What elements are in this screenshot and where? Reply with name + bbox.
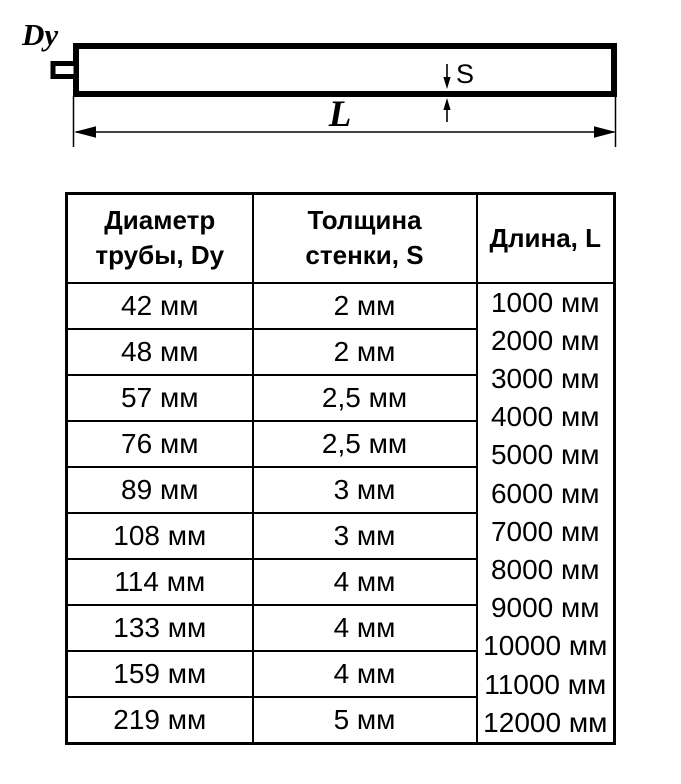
length-value: 8000 мм: [478, 551, 614, 589]
diameter-cell: 219 мм: [67, 697, 253, 743]
pipe-size-table: Диаметр трубы, Dy Толщина стенки, S Длин…: [65, 192, 616, 745]
length-value: 5000 мм: [478, 436, 614, 474]
thickness-cell: 2,5 мм: [253, 421, 477, 467]
length-value: 9000 мм: [478, 589, 614, 627]
thickness-cell: 3 мм: [253, 467, 477, 513]
length-value: 10000 мм: [478, 627, 614, 665]
header-line: трубы, Dy: [68, 238, 252, 273]
diameter-cell: 89 мм: [67, 467, 253, 513]
diameter-cell: 133 мм: [67, 605, 253, 651]
thickness-arrow-up: [443, 98, 450, 122]
length-value: 7000 мм: [478, 513, 614, 551]
diameter-cell: 76 мм: [67, 421, 253, 467]
length-value: 4000 мм: [478, 398, 614, 436]
length-value: 1000 мм: [478, 284, 614, 322]
thickness-cell: 2 мм: [253, 283, 477, 329]
thickness-cell: 3 мм: [253, 513, 477, 559]
length-value: 12000 мм: [478, 704, 614, 742]
thickness-cell: 4 мм: [253, 651, 477, 697]
diameter-cell: 42 мм: [67, 283, 253, 329]
pipe-dimension-diagram: Dy S L: [0, 0, 681, 190]
diameter-label: Dy: [21, 17, 58, 52]
length-list-cell: 1000 мм 2000 мм 3000 мм 4000 мм 5000 мм …: [477, 283, 615, 744]
column-header-length: Длина, L: [477, 194, 615, 283]
header-line: стенки, S: [254, 238, 476, 273]
pipe-end-notch: [53, 64, 76, 77]
pipe-spec-sheet: { "diagram": { "diameter_label": "Dy", "…: [0, 0, 681, 784]
thickness-cell: 2,5 мм: [253, 375, 477, 421]
pipe-body-outline: [76, 46, 614, 94]
diameter-cell: 114 мм: [67, 559, 253, 605]
length-value: 2000 мм: [478, 322, 614, 360]
column-header-diameter: Диаметр трубы, Dy: [67, 194, 253, 283]
thickness-cell: 5 мм: [253, 697, 477, 743]
column-header-thickness: Толщина стенки, S: [253, 194, 477, 283]
header-line: Диаметр: [68, 203, 252, 238]
length-value: 6000 мм: [478, 475, 614, 513]
length-label: L: [328, 94, 352, 135]
diameter-cell: 57 мм: [67, 375, 253, 421]
length-value: 11000 мм: [478, 666, 614, 704]
table-row: 42 мм 2 мм 1000 мм 2000 мм 3000 мм 4000 …: [67, 283, 615, 329]
header-row: Диаметр трубы, Dy Толщина стенки, S Длин…: [67, 194, 615, 283]
header-line: Толщина: [254, 203, 476, 238]
thickness-cell: 4 мм: [253, 605, 477, 651]
length-value: 3000 мм: [478, 360, 614, 398]
thickness-cell: 4 мм: [253, 559, 477, 605]
wall-thickness-label: S: [456, 59, 474, 89]
diameter-cell: 108 мм: [67, 513, 253, 559]
diameter-cell: 159 мм: [67, 651, 253, 697]
diameter-cell: 48 мм: [67, 329, 253, 375]
thickness-cell: 2 мм: [253, 329, 477, 375]
